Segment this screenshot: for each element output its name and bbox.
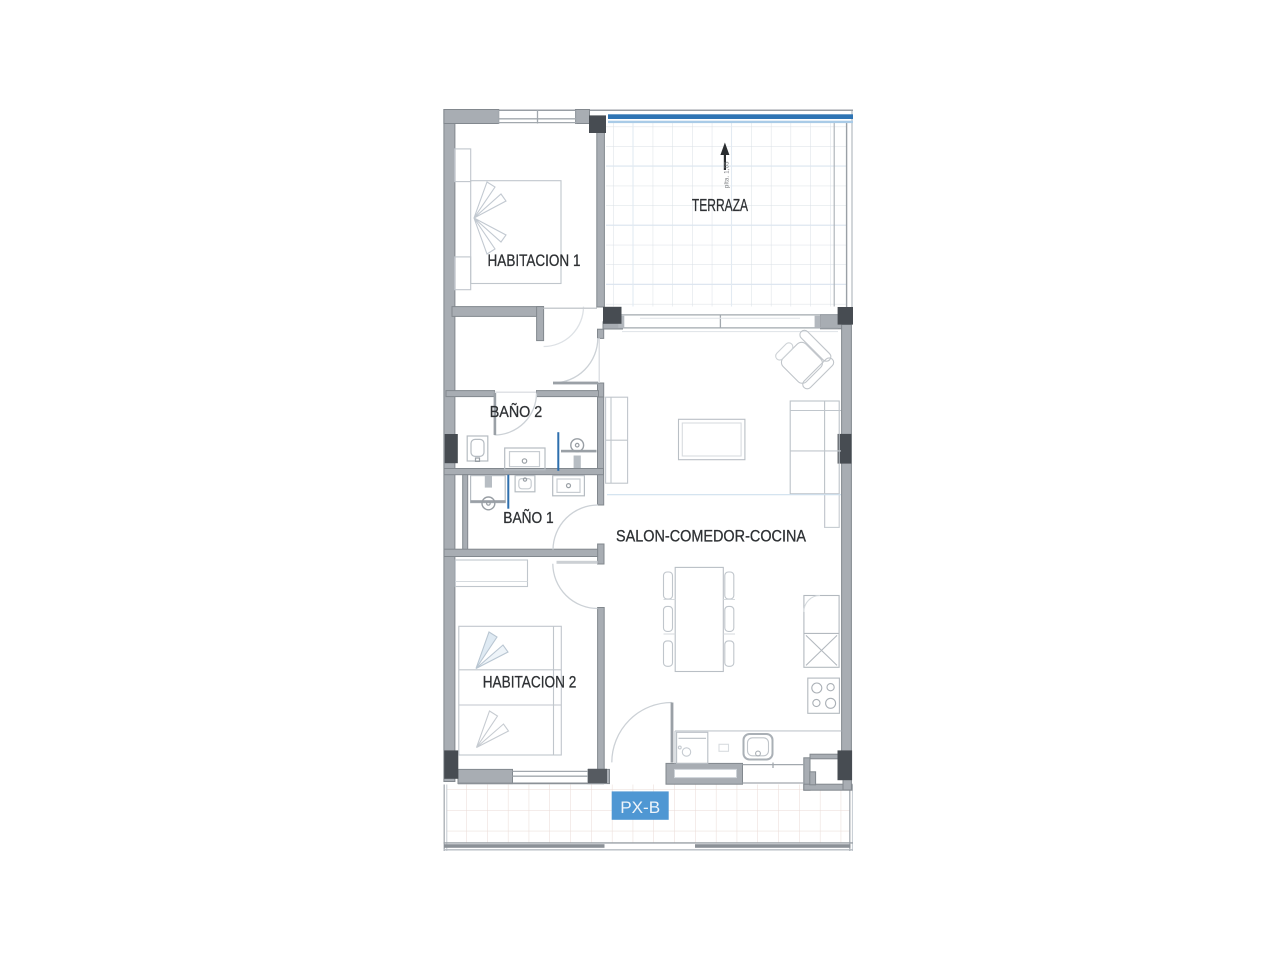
svg-text:TERRAZA: TERRAZA: [692, 196, 749, 216]
svg-text:SALON-COMEDOR-COCINA: SALON-COMEDOR-COCINA: [616, 528, 807, 546]
svg-text:plta. 1,05: plta. 1,05: [725, 161, 731, 188]
svg-text:BAÑO 1: BAÑO 1: [503, 509, 553, 527]
svg-text:HABITACION 2: HABITACION 2: [483, 673, 577, 692]
svg-text:BAÑO 2: BAÑO 2: [490, 403, 542, 421]
svg-text:PX-B: PX-B: [620, 798, 660, 817]
svg-text:HABITACION 1: HABITACION 1: [488, 252, 581, 271]
